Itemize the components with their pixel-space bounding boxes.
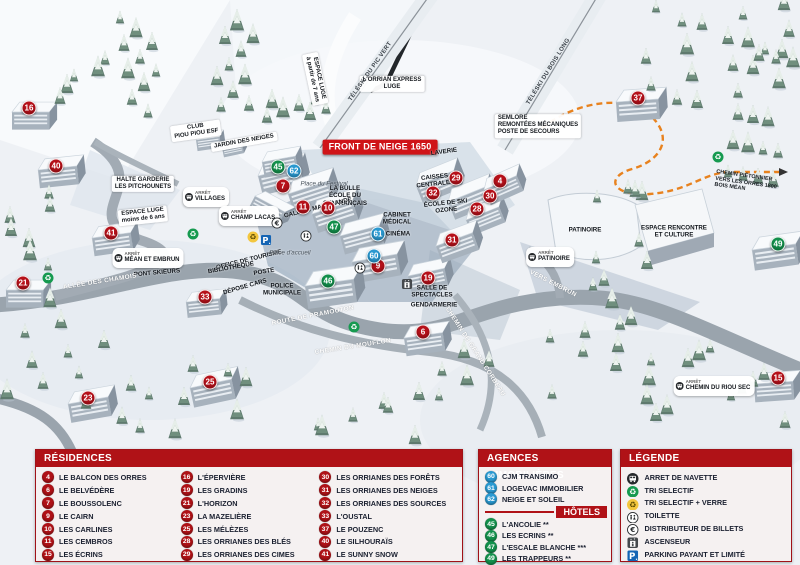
map-label: SEMLOREREMONTÉES MÉCANIQUESPOSTE DE SECO…	[495, 114, 581, 138]
item-label: L'HORIZON	[198, 499, 238, 508]
residence-item: 23LA MAZELIÈRE	[181, 510, 320, 523]
recycle-icon	[43, 273, 54, 284]
map-marker-49[interactable]: 49	[771, 237, 786, 252]
item-label: LE SILHOURAÏS	[336, 537, 392, 546]
wc-icon	[627, 510, 639, 522]
residence-item: 11LES CEMBROS	[42, 535, 181, 548]
panel-agences-hotels: AGENCES IMMOBILIÈRES 60CJM TRANSIMO61LOG…	[478, 449, 612, 562]
residence-item: 29LES ORRIANES DES CIMES	[181, 548, 320, 561]
map-marker-32[interactable]: 32	[426, 186, 441, 201]
map-label: TÉLÉSKI DU PIC VERT	[348, 41, 394, 103]
number-badge-33: 33	[319, 510, 331, 522]
item-label: LE BALCON DES ORRES	[59, 473, 147, 482]
residences-list: 4LE BALCON DES ORRES6LE BELVÉDÈRE7LE BOU…	[36, 467, 462, 561]
map-marker-46[interactable]: 46	[321, 274, 336, 289]
hotel-item: 49LES TRAPPEURS **	[485, 553, 607, 564]
map-marker-31[interactable]: 31	[445, 233, 460, 248]
map-marker-4[interactable]: 4	[493, 174, 508, 189]
bus-stop: ARRÊTCHAMP LACAS	[219, 206, 279, 226]
item-label: LES TRAPPEURS **	[502, 554, 571, 563]
panel-legende-title: LÉGENDE	[621, 450, 791, 467]
map-marker-40[interactable]: 40	[49, 159, 64, 174]
recycle-glass-icon	[248, 232, 259, 243]
map-label: Place d'accueil	[269, 249, 310, 256]
euro-icon	[272, 218, 283, 229]
item-label: LE BOUSSOLENC	[59, 499, 122, 508]
legende-label: ASCENSEUR	[645, 537, 691, 546]
residence-item: 16L'ÉPERVIÈRE	[181, 471, 320, 484]
number-badge-11: 11	[42, 536, 54, 548]
residence-item: 10LES CARLINES	[42, 523, 181, 536]
number-badge-23: 23	[181, 510, 193, 522]
item-label: LES ORRIANES DES FORÊTS	[336, 473, 439, 482]
residence-item: 31LES ORRIANES DES NEIGES	[319, 484, 458, 497]
panel-residences: RÉSIDENCES 4LE BALCON DES ORRES6LE BELVÉ…	[35, 449, 463, 562]
hotel-item: 47L'ESCALE BLANCHE ***	[485, 541, 607, 552]
item-label: LES GRADINS	[198, 486, 248, 495]
panel-agences-title: AGENCES IMMOBILIÈRES	[479, 450, 611, 467]
parking-icon	[627, 548, 639, 560]
number-badge-45: 45	[485, 518, 497, 530]
map-marker-62[interactable]: 62	[287, 164, 302, 179]
residence-item: 40LE SILHOURAÏS	[319, 535, 458, 548]
map-marker-16[interactable]: 16	[22, 101, 37, 116]
hotels-divider: HÔTELS	[485, 506, 607, 518]
item-label: LES CARLINES	[59, 525, 113, 534]
number-badge-29: 29	[181, 549, 193, 561]
legende-label: ARRET DE NAVETTE	[645, 473, 718, 482]
residence-item: 21L'HORIZON	[181, 497, 320, 510]
map-marker-45[interactable]: 45	[271, 160, 286, 175]
map-label: POLICEMUNICIPALE	[263, 283, 301, 298]
legende-label: TOILETTE	[645, 511, 680, 520]
map-marker-37[interactable]: 37	[631, 91, 646, 106]
map-label: PONT SKIEURS	[134, 267, 181, 278]
bus-icon	[528, 248, 536, 266]
recycle-icon	[713, 152, 724, 163]
agence-item: 62NEIGE ET SOLEIL	[485, 494, 607, 505]
legende-label: DISTRIBUTEUR DE BILLETS	[645, 524, 744, 533]
legende-label: PARKING PAYANT ET LIMITÉ	[645, 550, 746, 559]
map-marker-29[interactable]: 29	[449, 171, 464, 186]
legende-label: TRI SELECTIF	[645, 486, 694, 495]
wc-icon	[301, 231, 312, 242]
number-badge-40: 40	[319, 536, 331, 548]
item-label: LES ORRIANES DES SOURCES	[336, 499, 446, 508]
number-badge-62: 62	[485, 493, 497, 505]
map-marker-10[interactable]: 10	[321, 201, 336, 216]
map-label: PATINOIRE	[569, 226, 602, 233]
map-label: GALERIE MARCHANDE	[283, 196, 353, 220]
map-marker-23[interactable]: 23	[81, 391, 96, 406]
map-marker-33[interactable]: 33	[198, 290, 213, 305]
map-label: FRONT DE NEIGE 1650	[323, 140, 438, 155]
residence-item: 25LES MÉLÈZES	[181, 523, 320, 536]
map-label: TÉLÉSKI DU BOIS LONG	[526, 37, 573, 106]
residence-item: 28LES ORRIANES DES BLÉS	[181, 535, 320, 548]
number-badge-31: 31	[319, 484, 331, 496]
legende-item: TRI SELECTIF	[627, 484, 787, 497]
item-label: CJM TRANSIMO	[502, 472, 558, 481]
item-label: LA MAZELIÈRE	[198, 512, 252, 521]
number-badge-21: 21	[181, 497, 193, 509]
item-label: LE SUNNY SNOW	[336, 550, 398, 559]
bus-stop: ARRÊTPATINOIRE	[526, 247, 574, 267]
map-marker-21[interactable]: 21	[16, 276, 31, 291]
agence-item: 61LOGEVAC IMMOBILIER	[485, 482, 607, 493]
bus-icon	[115, 249, 123, 267]
item-label: NEIGE ET SOLEIL	[502, 495, 564, 504]
map-label: CHEMIN PIÉTONNIERVERS LES ORRES 1800BOIS…	[714, 169, 778, 197]
legende-item: PARKING PAYANT ET LIMITÉ	[627, 548, 787, 561]
map-label: DÉPOSE CARS	[222, 277, 267, 297]
recycle-icon	[349, 322, 360, 333]
map-label: ESPACE RENCONTREET CULTURE	[641, 225, 707, 240]
parking-icon	[261, 235, 272, 246]
elevator-icon	[402, 279, 413, 290]
bus-icon	[185, 188, 193, 206]
number-badge-60: 60	[485, 471, 497, 483]
number-badge-49: 49	[485, 553, 497, 565]
bus-stop-name: CHEMIN DU RIOU SEC	[686, 385, 751, 392]
number-badge-47: 47	[485, 541, 497, 553]
bus-stop: ARRÊTVILLAGES	[183, 187, 229, 207]
recycle-icon	[627, 484, 639, 496]
item-label: LES ORRIANES DES CIMES	[198, 550, 295, 559]
map-marker-41[interactable]: 41	[104, 226, 119, 241]
number-badge-15: 15	[42, 549, 54, 561]
recycle-icon	[188, 229, 199, 240]
legende-item: ASCENSEUR	[627, 535, 787, 548]
item-label: L'ÉPERVIÈRE	[198, 473, 246, 482]
residence-item: 9LE CAIRN	[42, 510, 181, 523]
item-label: L'ESCALE BLANCHE ***	[502, 543, 586, 552]
number-badge-46: 46	[485, 530, 497, 542]
map-marker-28[interactable]: 28	[470, 202, 485, 217]
residence-item: 6LE BELVÉDÈRE	[42, 484, 181, 497]
legende-label: TRI SELECTIF + VERRE	[645, 498, 728, 507]
item-label: LES ORRIANES DES NEIGES	[336, 486, 437, 495]
map-marker-30[interactable]: 30	[483, 189, 498, 204]
resort-map-page: ♻ ♻ €	[0, 0, 800, 565]
residence-item: 37LE POUZENC	[319, 523, 458, 536]
hotel-item: 45L'ANCOLIE **	[485, 519, 607, 530]
agence-item: 60CJM TRANSIMO	[485, 471, 607, 482]
item-label: LES ECRINS **	[502, 531, 554, 540]
item-label: LES ÉCRINS	[59, 550, 103, 559]
map-label: CLUBPIOU PIOU ESF	[170, 119, 222, 142]
bus-icon	[676, 377, 684, 395]
map-marker-25[interactable]: 25	[203, 375, 218, 390]
map-label: ROUTE DE PRAMOUTON	[271, 304, 355, 328]
map-label: CHEMIN DU MOUFLON	[314, 337, 391, 357]
map-marker-19[interactable]: 19	[421, 271, 436, 286]
number-badge-10: 10	[42, 523, 54, 535]
legende-item: TOILETTE	[627, 509, 787, 522]
residences-column: 16L'ÉPERVIÈRE19LES GRADINS21L'HORIZON23L…	[181, 471, 320, 561]
number-badge-16: 16	[181, 471, 193, 483]
map-marker-6[interactable]: 6	[416, 325, 431, 340]
map-label: VERS EMBRUN	[528, 269, 577, 299]
legende-item: ARRET DE NAVETTE	[627, 471, 787, 484]
map-marker-61[interactable]: 61	[371, 227, 386, 242]
item-label: LE POUZENC	[336, 525, 383, 534]
residences-column: 4LE BALCON DES ORRES6LE BELVÉDÈRE7LE BOU…	[42, 471, 181, 561]
residence-item: 19LES GRADINS	[181, 484, 320, 497]
number-badge-61: 61	[485, 482, 497, 494]
residence-item: 30LES ORRIANES DES FORÊTS	[319, 471, 458, 484]
bus-stop-name: CHAMP LACAS	[231, 215, 275, 222]
residence-item: 7LE BOUSSOLENC	[42, 497, 181, 510]
number-badge-6: 6	[42, 484, 54, 496]
residence-item: 33L'OUSTAL	[319, 510, 458, 523]
elevator-icon	[627, 536, 639, 548]
map-marker-11[interactable]: 11	[296, 200, 311, 215]
residence-item: 15LES ÉCRINS	[42, 548, 181, 561]
item-label: LE BELVÉDÈRE	[59, 486, 114, 495]
map-label: CHEMIN DU GRAND CORBEAU	[443, 306, 506, 398]
map-marker-47[interactable]: 47	[327, 220, 342, 235]
number-badge-37: 37	[319, 523, 331, 535]
map-label: ESPACE LUGEà partir de 7 ans	[302, 52, 329, 106]
item-label: L'ANCOLIE **	[502, 520, 549, 529]
map-label: CABINETMÉDICAL	[383, 212, 411, 227]
legende-list: ARRET DE NAVETTETRI SELECTIFTRI SELECTIF…	[621, 467, 791, 561]
number-badge-28: 28	[181, 536, 193, 548]
panel-residences-title: RÉSIDENCES	[36, 450, 462, 467]
item-label: L'OUSTAL	[336, 512, 372, 521]
hotel-item: 46LES ECRINS **	[485, 530, 607, 541]
bus-stop-name: VILLAGES	[195, 196, 225, 203]
map-label: Place du Festival	[300, 180, 347, 187]
legende-item: TRI SELECTIF + VERRE	[627, 497, 787, 510]
panel-legende: LÉGENDE ARRET DE NAVETTETRI SELECTIFTRI …	[620, 449, 792, 562]
residence-item: 4LE BALCON DES ORRES	[42, 471, 181, 484]
map-label: SALLE DESPECTACLES	[411, 285, 452, 300]
number-badge-25: 25	[181, 523, 193, 535]
number-badge-4: 4	[42, 471, 54, 483]
item-label: LES ORRIANES DES BLÉS	[198, 537, 291, 546]
number-badge-41: 41	[319, 549, 331, 561]
hotels-banner: HÔTELS	[556, 506, 607, 518]
residence-item: 41LE SUNNY SNOW	[319, 548, 458, 561]
bus-stop: ARRÊTCHEMIN DU RIOU SEC	[674, 376, 755, 396]
map-marker-7[interactable]: 7	[276, 179, 291, 194]
map-marker-15[interactable]: 15	[771, 371, 786, 386]
euro-icon	[627, 523, 639, 535]
item-label: LES CEMBROS	[59, 537, 113, 546]
item-label: LES MÉLÈZES	[198, 525, 249, 534]
wc-icon	[355, 263, 366, 274]
bus-stop-name: PATINOIRE	[538, 256, 570, 263]
map-marker-60[interactable]: 60	[367, 249, 382, 264]
residence-item: 32LES ORRIANES DES SOURCES	[319, 497, 458, 510]
item-label: LOGEVAC IMMOBILIER	[502, 484, 583, 493]
number-badge-30: 30	[319, 471, 331, 483]
bus-icon	[221, 207, 229, 225]
map-label: CINÉMA	[386, 230, 410, 237]
residences-column: 30LES ORRIANES DES FORÊTS31LES ORRIANES …	[319, 471, 458, 561]
bus-icon	[627, 472, 639, 484]
map-label: ALLÉE DES CHAMOIS	[63, 272, 138, 291]
number-badge-32: 32	[319, 497, 331, 509]
number-badge-7: 7	[42, 497, 54, 509]
recycle-glass-icon	[627, 497, 639, 509]
bus-stop-name: MÉAN ET EMBRUN	[125, 257, 180, 264]
map-label: ESPACE LUGEmoins de 6 ans	[118, 205, 169, 226]
number-badge-19: 19	[181, 484, 193, 496]
number-badge-9: 9	[42, 510, 54, 522]
bus-stop: ARRÊTMÉAN ET EMBRUN	[113, 248, 184, 268]
item-label: LE CAIRN	[59, 512, 93, 521]
map-label: HALTE GARDERIELES PITCHOUNETS	[112, 176, 174, 192]
legende-item: DISTRIBUTEUR DE BILLETS	[627, 522, 787, 535]
map-label: POSTE	[253, 267, 275, 278]
